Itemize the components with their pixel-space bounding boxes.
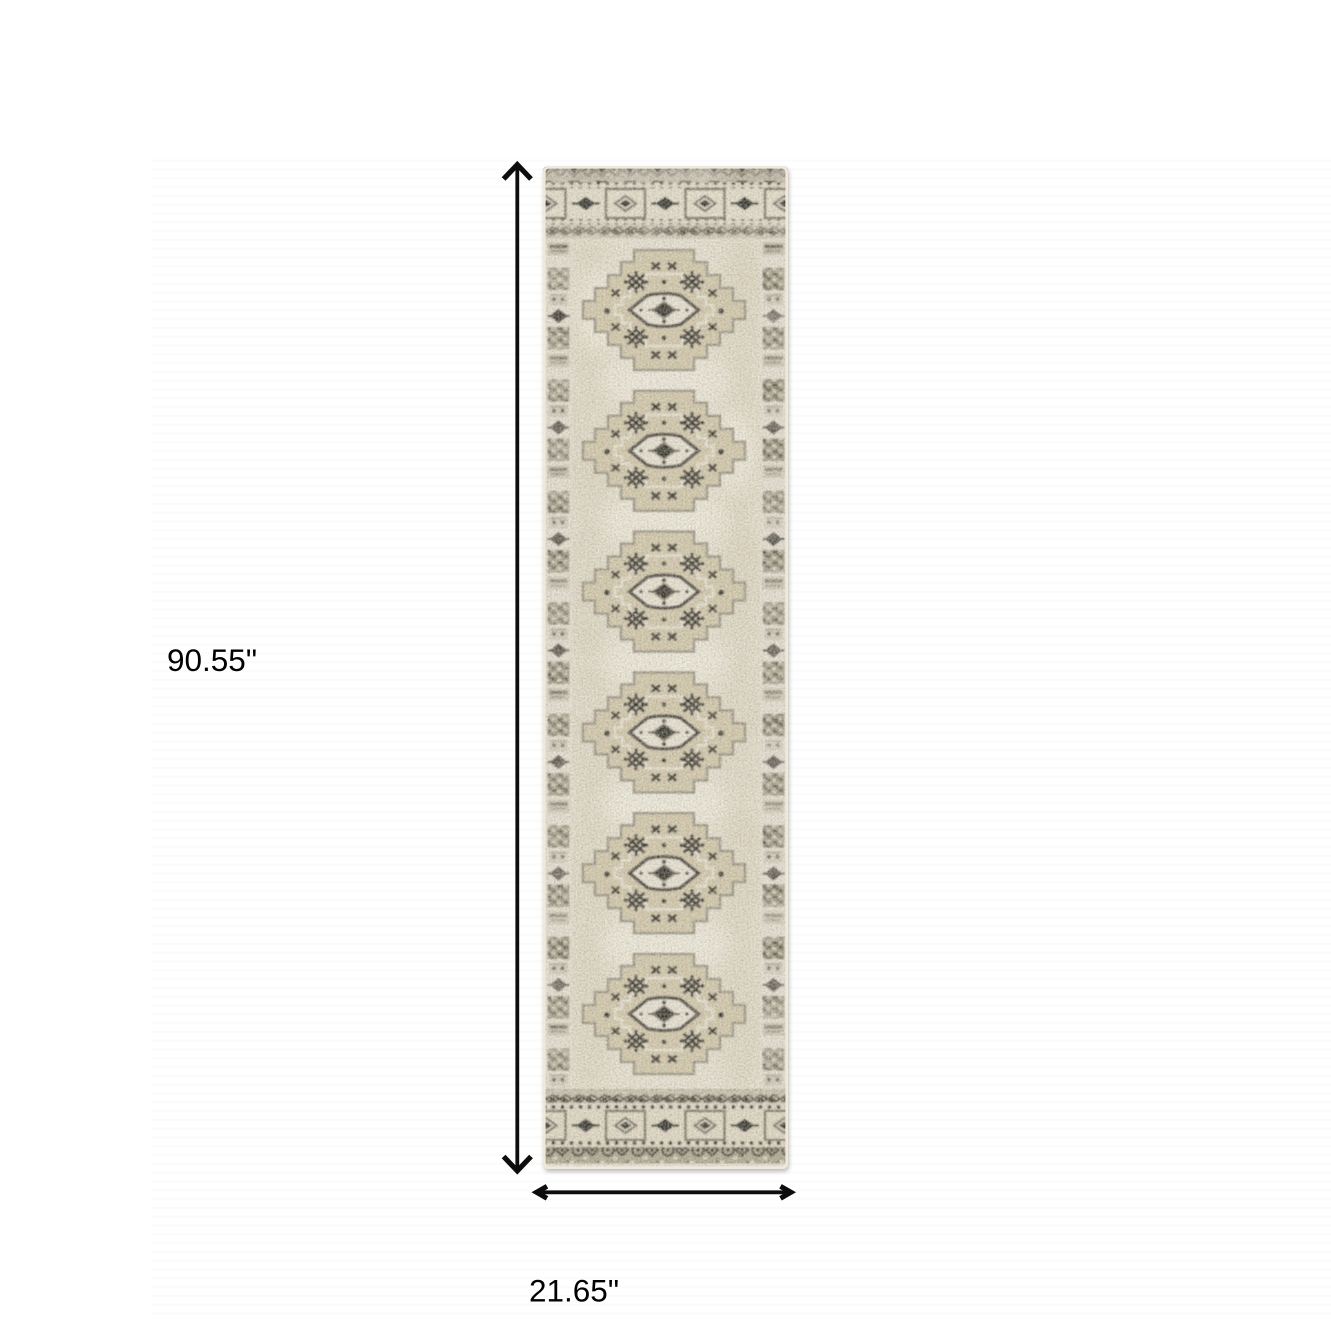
svg-text:90.55": 90.55": [167, 642, 257, 678]
svg-text:21.65": 21.65": [529, 1273, 619, 1309]
